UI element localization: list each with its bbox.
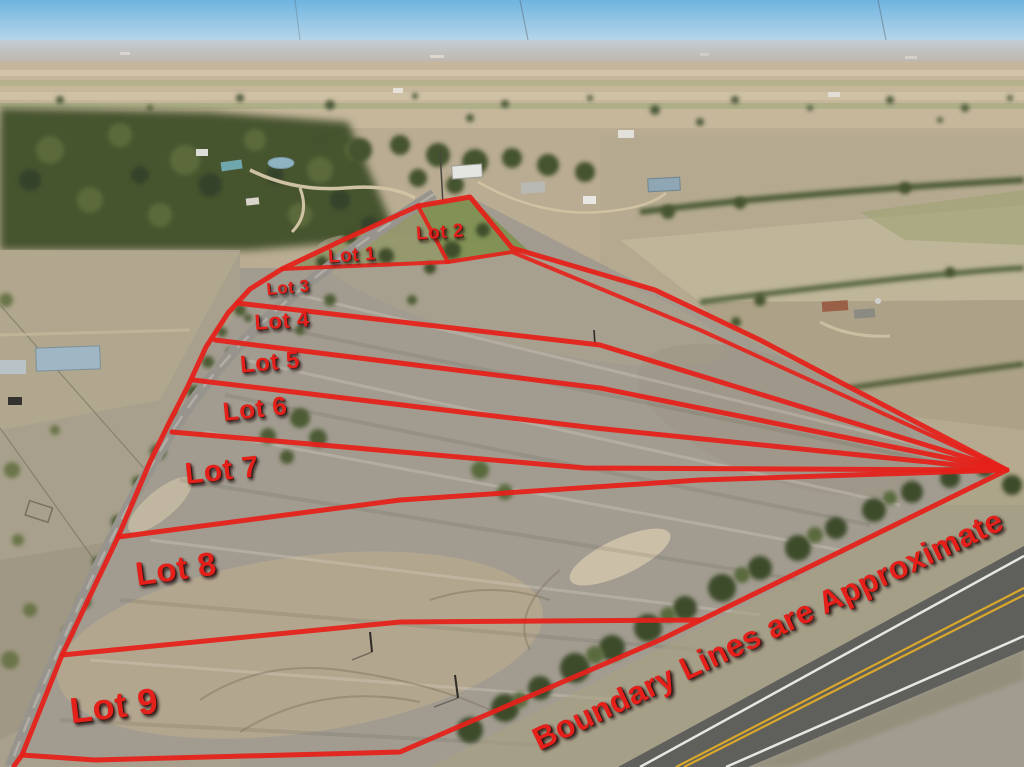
blue-roof-barn [36, 346, 101, 371]
lot-label-2: Lot 2 [415, 220, 464, 245]
small-shed [246, 197, 260, 205]
gray-barn [521, 181, 546, 194]
white-barn [452, 164, 483, 179]
lot-label-3: Lot 3 [266, 276, 311, 300]
lot-label-4: Lot 4 [254, 306, 311, 336]
gray-shed [0, 360, 26, 374]
landscape-scene [0, 0, 1024, 767]
distant-building [828, 92, 840, 97]
small-house [196, 149, 208, 156]
lot-label-1: Lot 1 [327, 243, 376, 268]
white-shed [583, 196, 596, 204]
lot-label-5: Lot 5 [239, 346, 301, 379]
distant-building [393, 88, 403, 93]
pond [268, 158, 294, 169]
aerial-lot-photo: Lot 1 Lot 2 Lot 3 Lot 4 Lot 5 Lot 6 Lot … [0, 0, 1024, 767]
metal-barn [648, 177, 681, 192]
white-house [618, 130, 634, 138]
parked-vehicle [8, 397, 22, 405]
